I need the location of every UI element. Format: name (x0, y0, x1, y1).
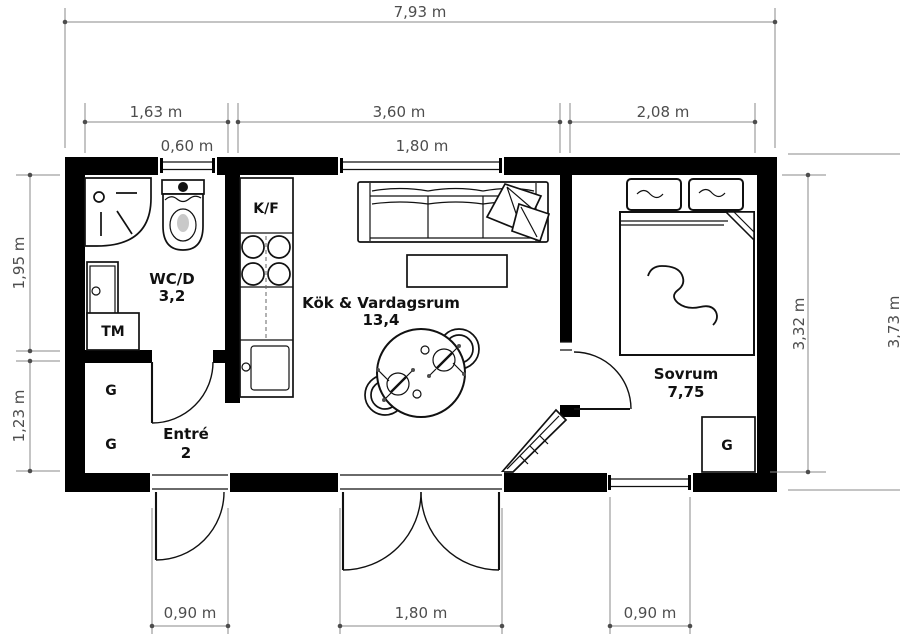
wc-window (158, 156, 217, 176)
wall-wc-entry-jamb (213, 350, 225, 363)
coffee-table (407, 255, 507, 287)
wc-room-label: WC/D (149, 270, 194, 288)
living-window (338, 156, 504, 176)
wall-living-bedroom (560, 175, 572, 342)
dim-overall-height: 3,73 m (885, 296, 900, 349)
wall-wc-kitchen (225, 175, 240, 403)
dim-bedroom-section: 2,08 m (637, 103, 690, 121)
kitchen-living-label: Kök & Vardagsrum (302, 294, 460, 312)
dim-patio-door: 1,80 m (395, 604, 448, 622)
wc-room-area: 3,2 (159, 287, 186, 305)
fridge-freezer-label: K/F (253, 201, 279, 217)
toilet-icon (162, 180, 204, 250)
pillow (627, 179, 681, 210)
wardrobe-label: G (105, 437, 117, 453)
entry-label: Entré (163, 425, 209, 443)
wardrobe-label: G (105, 383, 117, 399)
dim-entry-depth: 1,23 m (10, 390, 28, 443)
dim-overall-width: 7,93 m (394, 3, 447, 21)
dining-table (377, 329, 465, 417)
bathroom-cabinet (87, 262, 118, 319)
dim-entry-door: 0,90 m (164, 604, 217, 622)
washing-machine-label: TM (101, 324, 124, 340)
kitchen-living-area: 13,4 (362, 311, 399, 329)
entry-door (150, 472, 230, 560)
dim-wc-depth: 1,95 m (10, 237, 28, 290)
wall-wc-entry (85, 350, 152, 363)
patio-double-door (338, 472, 504, 570)
pillow (689, 179, 743, 210)
bed (620, 212, 754, 355)
entry-area: 2 (181, 444, 191, 462)
floor-plan-drawing: WC/D 3,2 Kök & Vardagsrum 13,4 Sovrum 7,… (0, 0, 900, 642)
wall-bedroom-door-stub (560, 405, 580, 417)
bedroom-window (607, 472, 693, 492)
dim-wc-section: 1,63 m (130, 103, 183, 121)
wardrobe-label: G (721, 438, 733, 454)
floor-plan: WC/D 3,2 Kök & Vardagsrum 13,4 Sovrum 7,… (0, 0, 900, 642)
dim-living-section: 3,60 m (373, 103, 426, 121)
dim-bedroom-window: 0,90 m (624, 604, 677, 622)
dim-interior-height: 3,32 m (790, 298, 808, 351)
bedroom-area: 7,75 (667, 383, 704, 401)
dim-living-window: 1,80 m (396, 137, 449, 155)
bedroom-label: Sovrum (654, 365, 719, 383)
dim-wc-window: 0,60 m (161, 137, 214, 155)
